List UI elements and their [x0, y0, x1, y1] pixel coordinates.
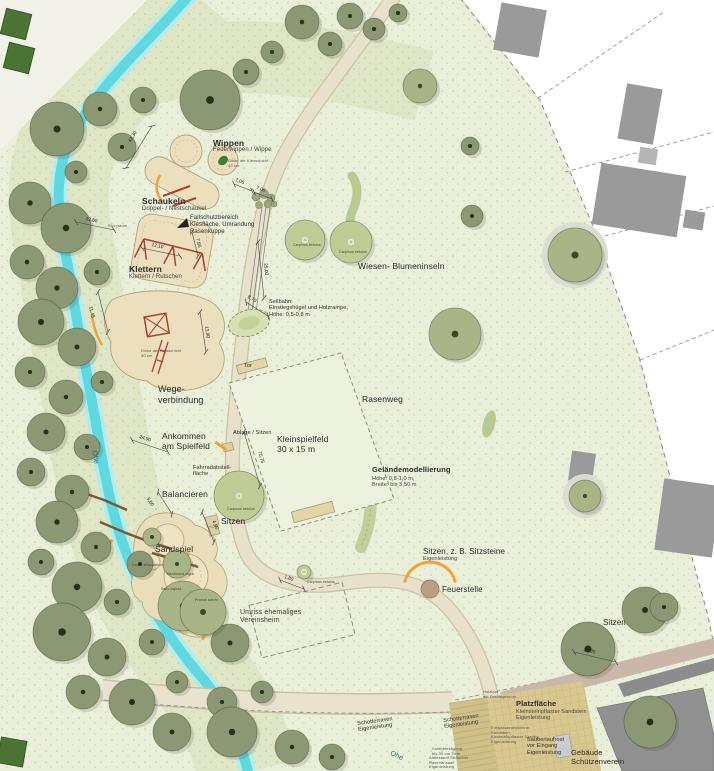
site-plan-svg	[0, 0, 714, 771]
green-structure	[0, 737, 27, 767]
tree	[563, 474, 607, 518]
sauberlaufrost	[553, 734, 573, 758]
feuerstelle-circle	[421, 580, 439, 598]
existing-building	[638, 147, 658, 166]
green-structure	[3, 42, 35, 74]
existing-building	[493, 2, 547, 57]
existing-building	[683, 210, 706, 231]
plaza-paving	[487, 681, 601, 771]
tree	[542, 222, 608, 288]
green-structure	[0, 8, 32, 40]
existing-building	[654, 478, 714, 557]
site-plan: { "plan": { "type": "Landschaftsplan Spi…	[0, 0, 714, 771]
